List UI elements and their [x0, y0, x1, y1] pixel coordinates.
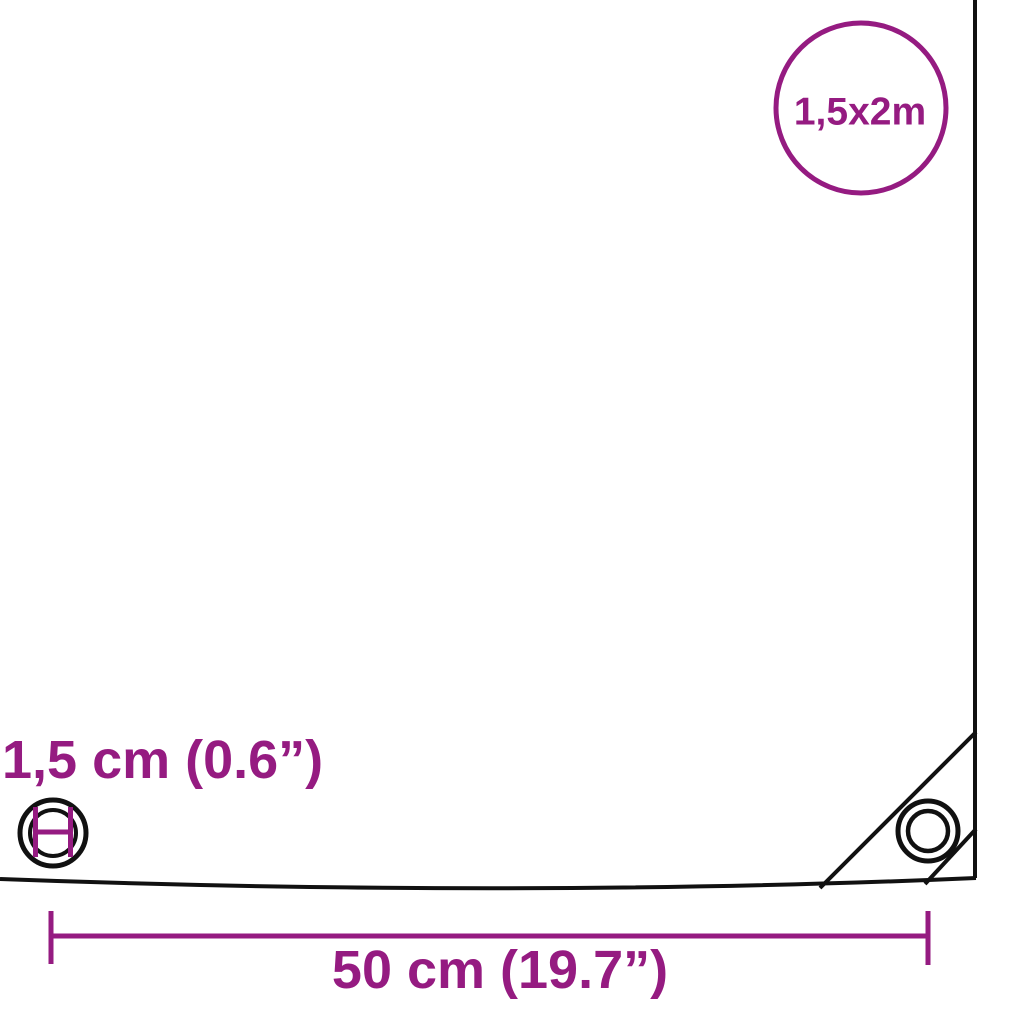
eyelet-diameter-icon — [20, 800, 86, 866]
eyelet-spacing-label: 50 cm (19.7”) — [332, 943, 668, 997]
eyelet-diameter-label: 1,5 cm (0.6”) — [2, 733, 323, 787]
size-badge-label: 1,5x2m — [794, 93, 926, 132]
product-dimension-diagram: 1,5x2m 1,5 cm (0.6”) 50 cm (19.7”) — [0, 0, 1024, 1024]
corner-eyelet-inner-ring — [908, 811, 948, 851]
diagram-canvas — [0, 0, 1024, 1024]
corner-eyelet-icon — [898, 801, 958, 861]
